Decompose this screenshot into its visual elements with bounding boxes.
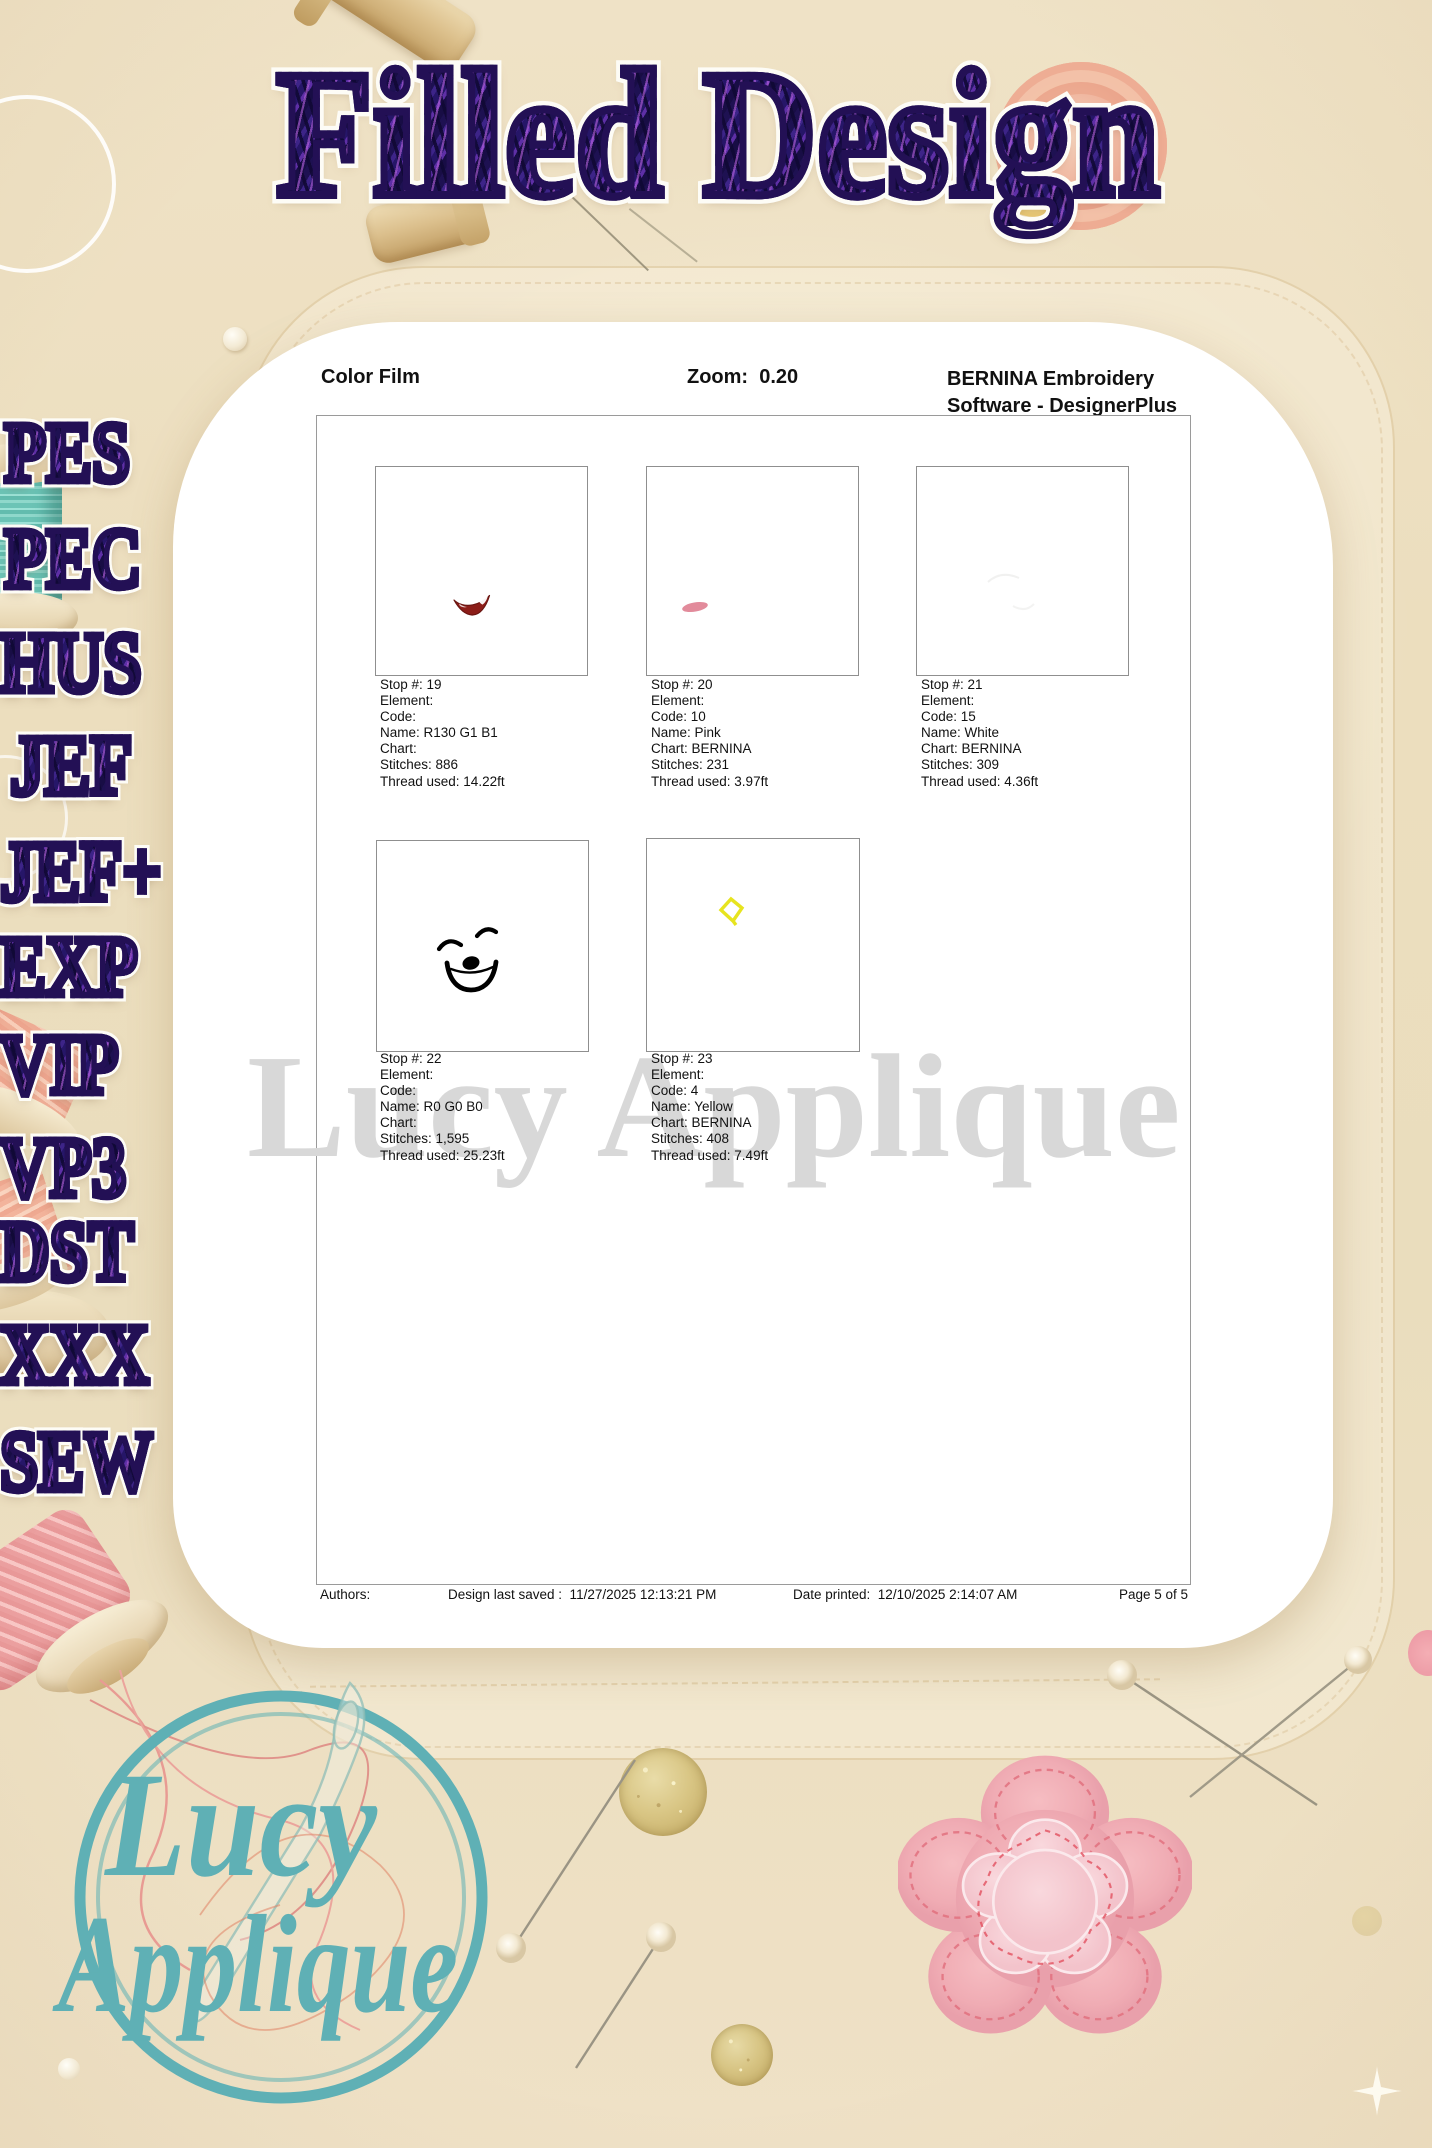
svg-text:Applique: Applique [52, 1887, 458, 2042]
svg-text:Lucy: Lucy [103, 1742, 378, 1908]
